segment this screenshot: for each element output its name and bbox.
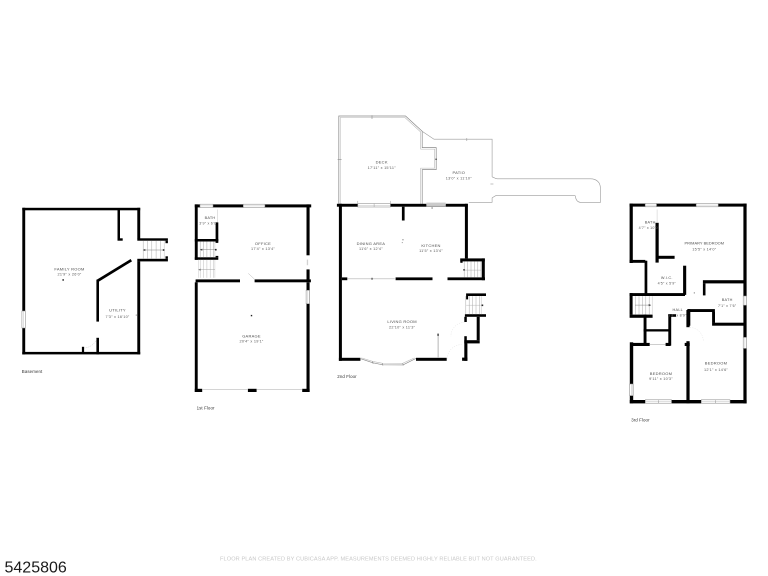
svg-text:15'5" x 14'0": 15'5" x 14'0": [692, 247, 716, 251]
svg-text:13'0" x 11'10": 13'0" x 11'10": [446, 177, 473, 181]
svg-text:FLOOR PLAN CREATED BY CUBICASA: FLOOR PLAN CREATED BY CUBICASA APP. MEAS…: [220, 556, 537, 562]
svg-text:11'6" x 12'4": 11'6" x 12'4": [359, 247, 383, 251]
svg-text:21'9" x 26'0": 21'9" x 26'0": [57, 272, 81, 276]
svg-text:BATH: BATH: [722, 298, 733, 302]
svg-text:12'1" x 14'6": 12'1" x 14'6": [704, 368, 728, 372]
svg-text:BATH: BATH: [645, 221, 656, 225]
svg-text:22'10" x 11'3": 22'10" x 11'3": [389, 326, 416, 330]
svg-text:GARAGE: GARAGE: [242, 333, 261, 338]
svg-text:PRIMARY BEDROOM: PRIMARY BEDROOM: [685, 240, 725, 245]
svg-text:HALL: HALL: [673, 308, 684, 312]
svg-text:17'11" x 15'11": 17'11" x 15'11": [368, 166, 397, 170]
svg-text:DINING AREA: DINING AREA: [357, 241, 386, 246]
svg-text:LIVING ROOM: LIVING ROOM: [387, 319, 416, 324]
svg-text:3'4" x 8'9": 3'4" x 8'9": [668, 314, 687, 318]
svg-text:OFFICE: OFFICE: [255, 241, 271, 246]
svg-text:BEDROOM: BEDROOM: [705, 360, 727, 365]
svg-text:9'11" x 10'3": 9'11" x 10'3": [649, 377, 673, 381]
svg-text:11'5" x 13'4": 11'5" x 13'4": [419, 249, 443, 253]
svg-text:1st Floor: 1st Floor: [197, 406, 215, 411]
svg-text:Basement: Basement: [22, 369, 43, 374]
svg-text:DECK: DECK: [376, 160, 388, 165]
svg-text:W.I.C.: W.I.C.: [661, 276, 673, 280]
svg-text:3'9" x 6'0": 3'9" x 6'0": [199, 221, 218, 225]
svg-text:BEDROOM: BEDROOM: [650, 371, 672, 376]
svg-text:7'1" x 7'6": 7'1" x 7'6": [718, 304, 737, 308]
svg-text:4'7" x 10'0": 4'7" x 10'0": [639, 226, 660, 230]
svg-text:PATIO: PATIO: [452, 170, 465, 175]
svg-text:4'5" x 5'9": 4'5" x 5'9": [658, 281, 677, 285]
svg-text:2nd Floor: 2nd Floor: [337, 374, 357, 379]
svg-text:20'4" x 19'1": 20'4" x 19'1": [239, 340, 263, 344]
svg-text:KITCHEN: KITCHEN: [421, 243, 440, 248]
svg-text:5425806: 5425806: [5, 559, 67, 576]
svg-text:17'4" x 13'4": 17'4" x 13'4": [251, 247, 275, 251]
svg-text:3rd Floor: 3rd Floor: [631, 417, 650, 422]
svg-text:FAMILY ROOM: FAMILY ROOM: [54, 266, 84, 271]
svg-text:BATH: BATH: [205, 216, 216, 220]
svg-text:UTILITY: UTILITY: [109, 307, 126, 312]
svg-text:7'3" x 16'10": 7'3" x 16'10": [105, 315, 129, 319]
